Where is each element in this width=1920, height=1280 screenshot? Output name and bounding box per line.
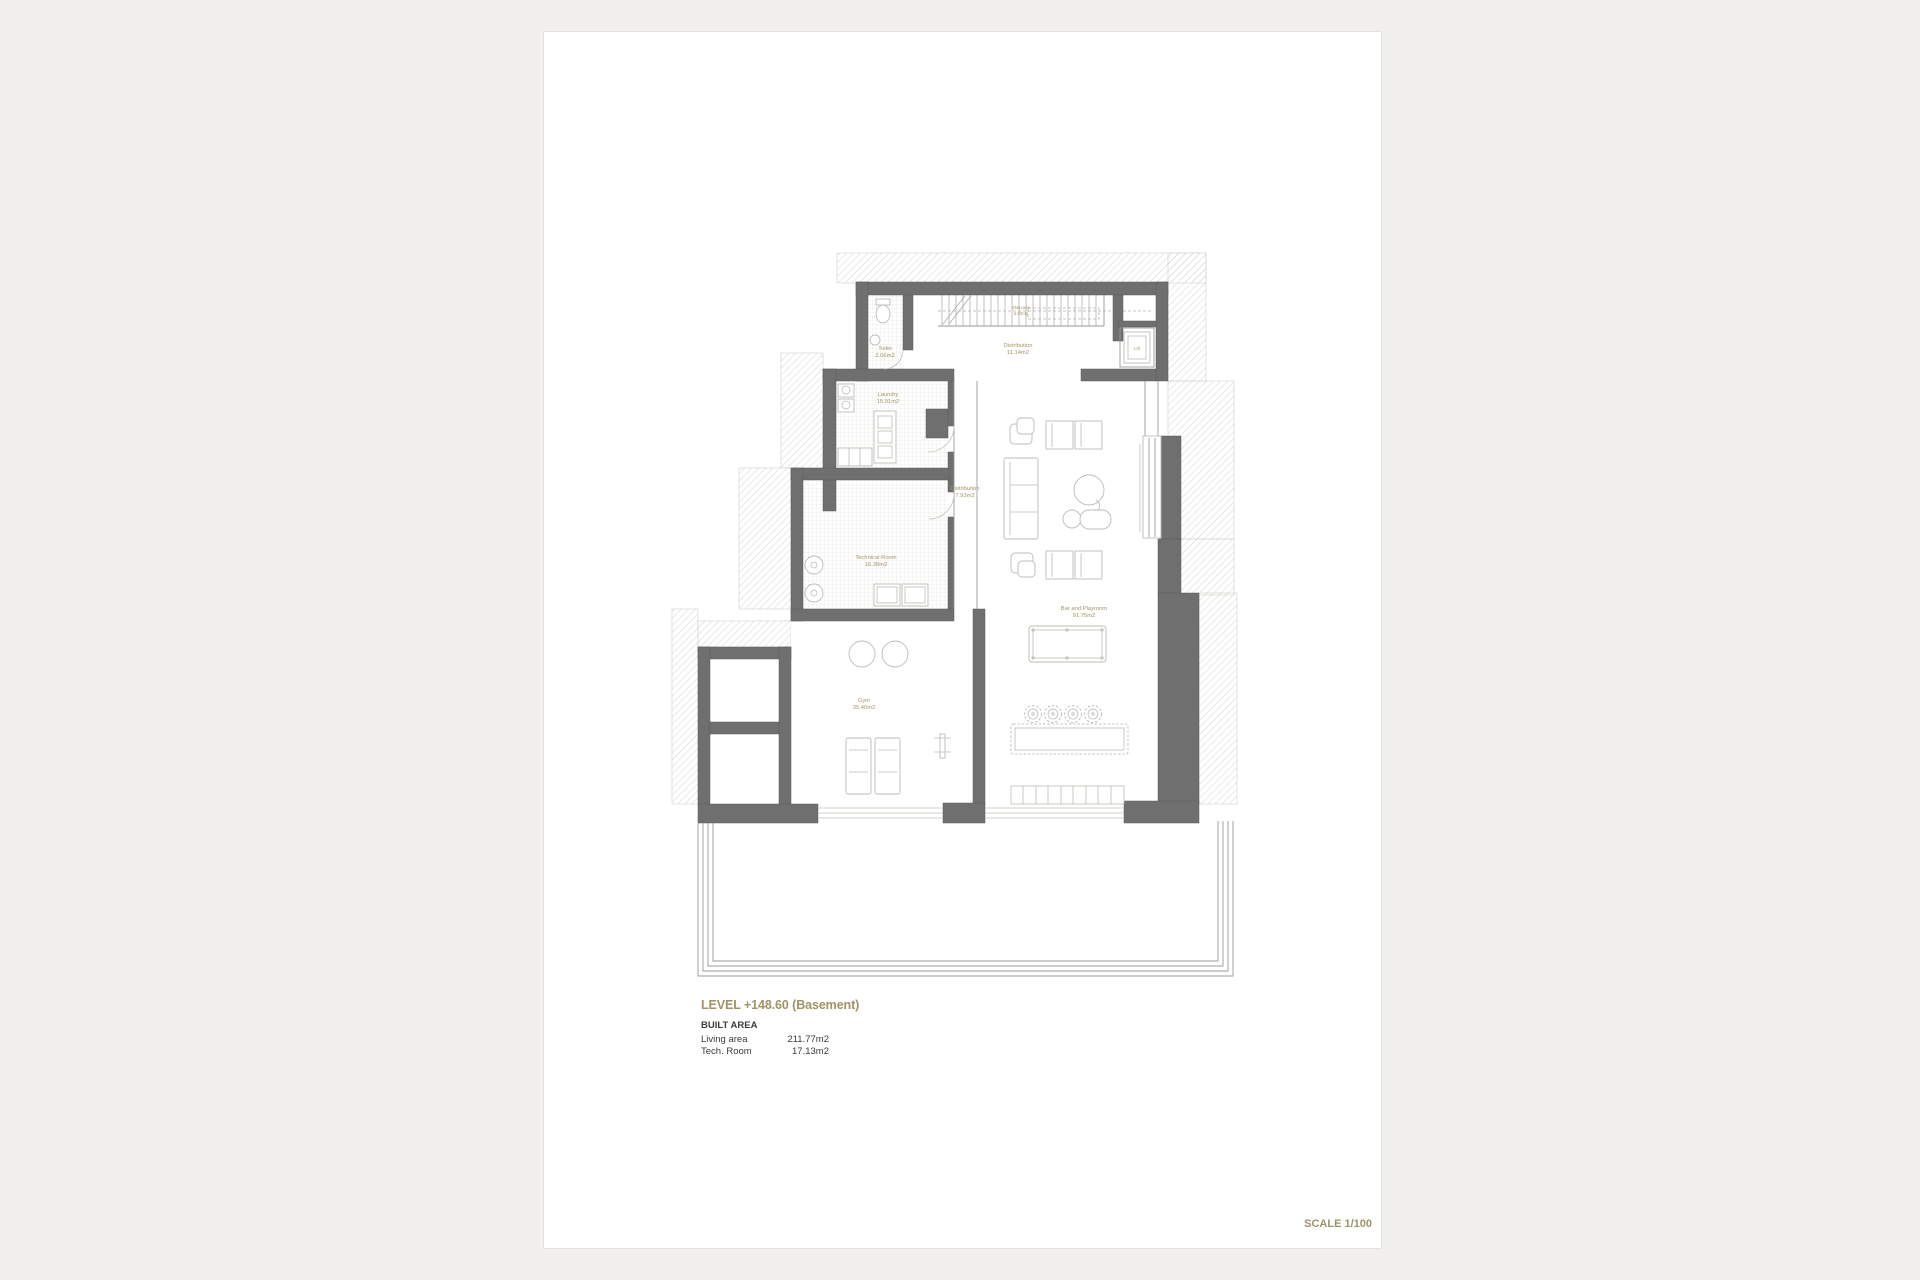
staircase-area: 5.80m2 xyxy=(1014,311,1029,316)
distribution-upper-label: Distribution xyxy=(1004,343,1033,349)
tech-room-value: 17.13m2 xyxy=(773,1046,829,1058)
living-area-label: Living area xyxy=(701,1034,773,1046)
drawing-sheet: Staircase 5.80m2 Toilet 2.06m2 Distribut… xyxy=(543,31,1382,1249)
lift-label: Lift xyxy=(1134,346,1141,351)
area-row-living: Living area 211.77m2 xyxy=(701,1034,961,1046)
gym-area: 35.40m2 xyxy=(853,705,876,711)
bar-playroom-label: Bar and Playroom xyxy=(1061,606,1108,612)
distribution-upper-area: 11.14m2 xyxy=(1007,350,1029,356)
technical-room-area: 16.38m2 xyxy=(865,562,888,568)
bar-playroom-area: 91.75m2 xyxy=(1073,613,1096,619)
built-area-heading: BUILT AREA xyxy=(701,1020,961,1031)
laundry-area: 15.91m2 xyxy=(877,399,900,405)
technical-room-label: Technical Room xyxy=(855,555,896,561)
title-block: LEVEL +148.60 (Basement) BUILT AREA Livi… xyxy=(701,998,961,1057)
area-row-tech: Tech. Room 17.13m2 xyxy=(701,1046,961,1058)
canvas-background: { "title_block": { "level_title": "LEVEL… xyxy=(0,0,1920,1280)
scale-label: SCALE 1/100 xyxy=(1256,1218,1372,1230)
terrace-steps xyxy=(698,821,1233,976)
distribution-lower-area: 7.93m2 xyxy=(955,493,974,499)
tech-room-label: Tech. Room xyxy=(701,1046,773,1058)
floor-plan-drawing: Staircase 5.80m2 Toilet 2.06m2 Distribut… xyxy=(544,32,1383,1250)
gym-label: Gym xyxy=(858,698,870,704)
living-area-value: 211.77m2 xyxy=(773,1034,829,1046)
toilet-area: 2.06m2 xyxy=(875,353,894,359)
laundry-label: Laundry xyxy=(878,392,899,398)
toilet-label: Toilet xyxy=(878,346,892,352)
staircase-label: Staircase xyxy=(1012,305,1031,310)
level-title: LEVEL +148.60 (Basement) xyxy=(701,998,961,1012)
distribution-lower-label: Distribution xyxy=(951,486,980,492)
